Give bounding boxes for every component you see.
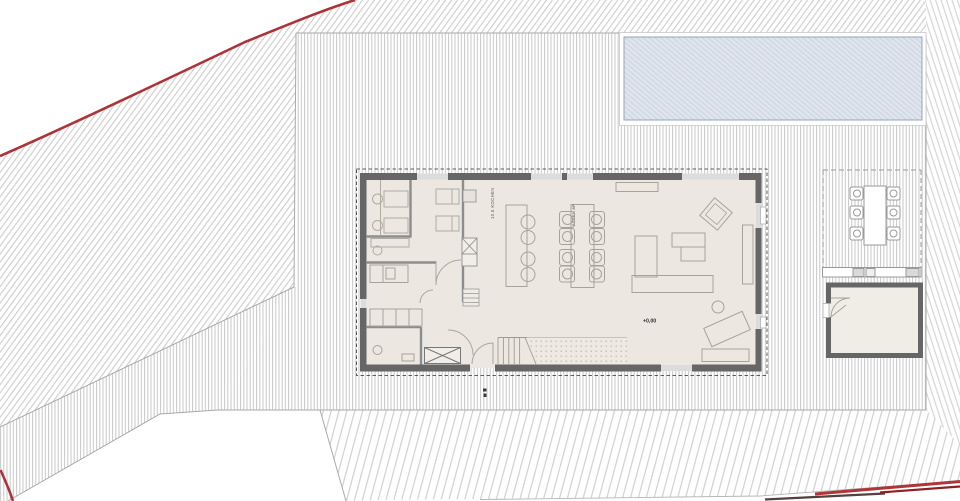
svg-text:+0,00: +0,00 — [643, 319, 656, 325]
svg-text:10.5 KOCHEN: 10.5 KOCHEN — [490, 187, 495, 219]
